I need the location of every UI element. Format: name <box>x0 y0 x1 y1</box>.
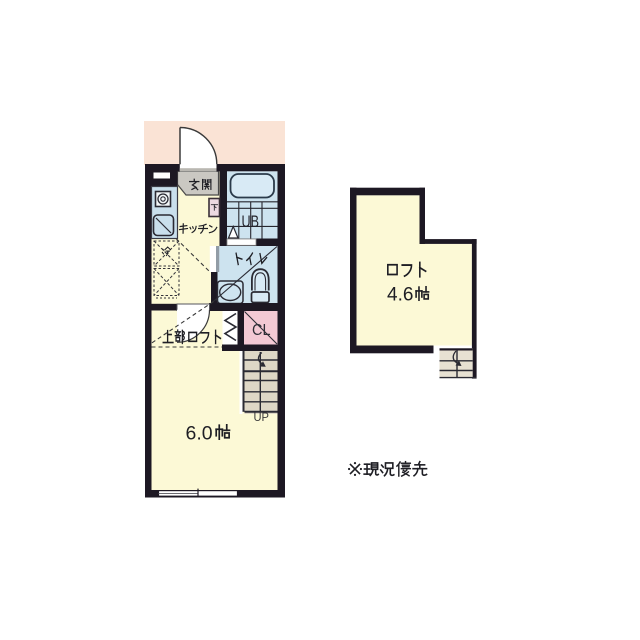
svg-text:UP: UP <box>254 410 270 424</box>
svg-text:6.0: 6.0 <box>186 423 213 445</box>
svg-text:UB: UB <box>242 212 260 231</box>
svg-text:CL: CL <box>252 322 271 339</box>
svg-text:4.6: 4.6 <box>387 285 413 306</box>
